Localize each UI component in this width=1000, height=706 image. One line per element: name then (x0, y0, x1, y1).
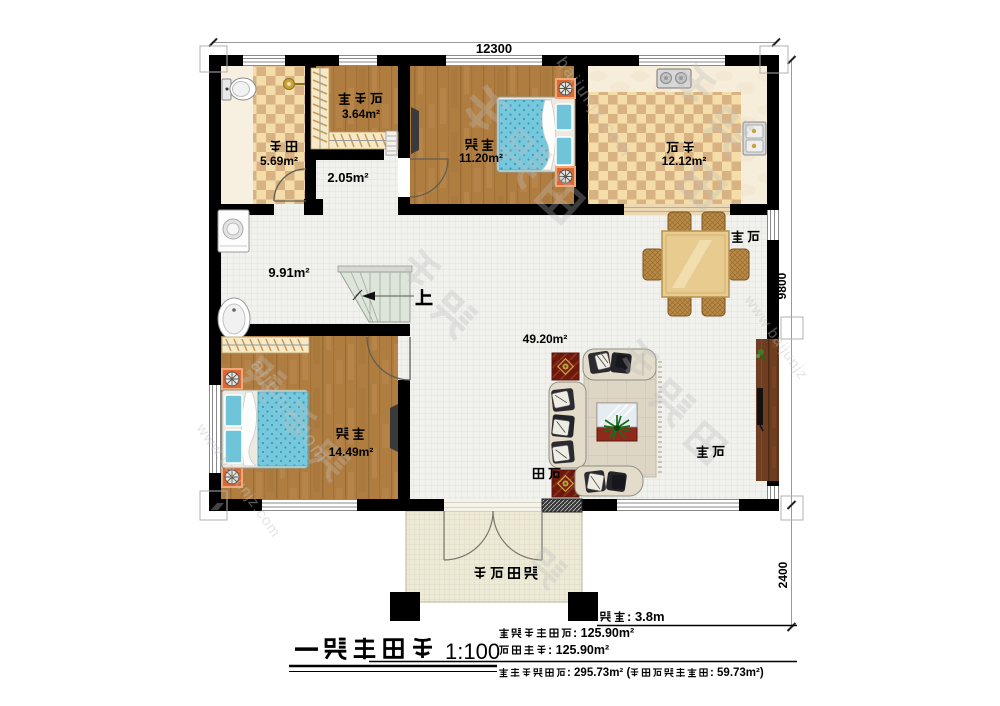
svg-text:3.64m²: 3.64m² (342, 107, 380, 121)
svg-text:2.05m²: 2.05m² (327, 170, 369, 185)
svg-text:: 295.73m² (: : 295.73m² ( (567, 667, 630, 679)
svg-text:2400: 2400 (776, 561, 790, 588)
svg-text:12300: 12300 (476, 41, 512, 56)
svg-text:: 125.90m²: : 125.90m² (548, 643, 609, 657)
svg-text:: 3.8m: : 3.8m (627, 609, 665, 624)
svg-text:14.49m²: 14.49m² (329, 445, 374, 459)
svg-text:5.69m²: 5.69m² (260, 154, 298, 168)
svg-text:12.12m²: 12.12m² (662, 154, 707, 168)
svg-text:1:100: 1:100 (445, 639, 500, 664)
svg-text:9.91m²: 9.91m² (268, 265, 310, 280)
svg-text:: 59.73m²): : 59.73m²) (710, 667, 764, 679)
svg-text:: 125.90m²: : 125.90m² (573, 626, 634, 640)
svg-text:11.20m²: 11.20m² (459, 151, 503, 165)
svg-text:49.20m²: 49.20m² (523, 332, 568, 346)
svg-text:9800: 9800 (775, 272, 789, 299)
